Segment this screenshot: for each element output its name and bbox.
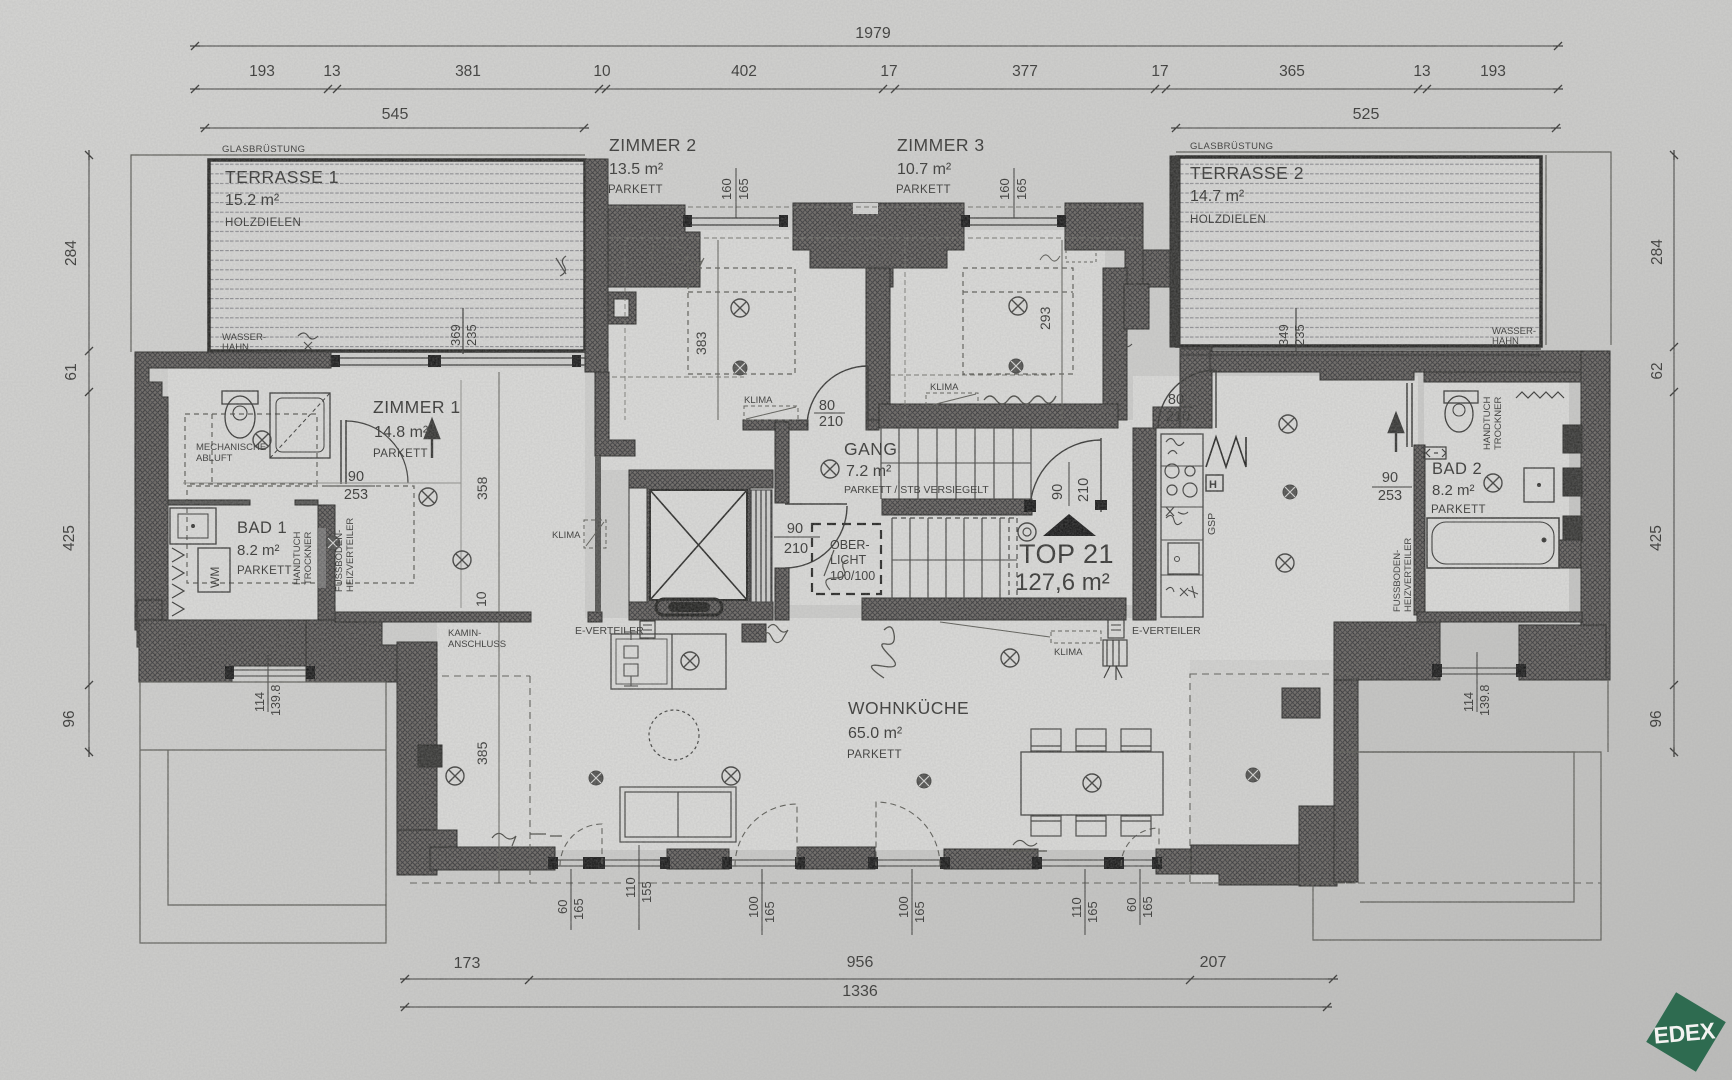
svg-text:EDEX: EDEX — [1653, 1017, 1717, 1048]
